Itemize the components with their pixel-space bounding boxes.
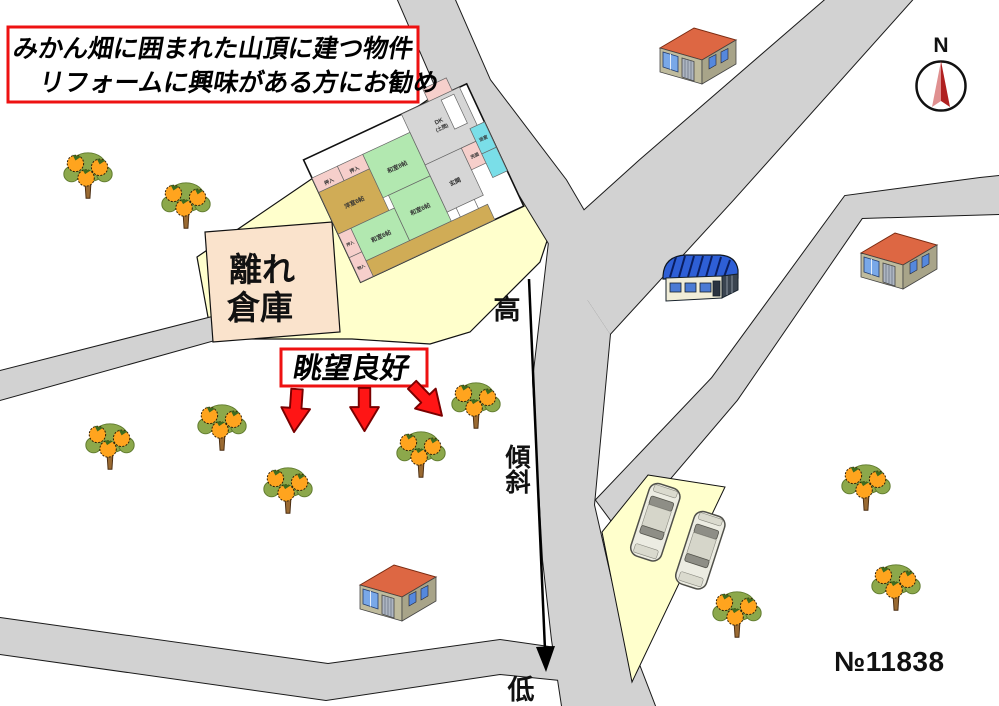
view-arrow (280, 388, 312, 433)
mikan-tree (452, 383, 500, 428)
annex-building: 離れ 倉庫 (205, 222, 340, 342)
mikan-tree (162, 183, 210, 228)
headline-box: みかん畑に囲まれた山頂に建つ物件 リフォームに興味がある方にお勧め (8, 27, 441, 102)
road-network (0, 0, 999, 706)
house-icon (660, 28, 736, 84)
slope-low-label: 低 (507, 675, 535, 705)
mikan-tree (713, 592, 761, 637)
mikan-tree (64, 153, 112, 198)
mikan-tree (842, 465, 890, 510)
annex-label-line2: 倉庫 (226, 289, 293, 326)
view-note: 眺望良好 (280, 349, 453, 433)
site-map: 離れ 倉庫 押入 押入 洋室6帖 和室8帖 (0, 0, 999, 706)
compass-north-label: N (933, 34, 948, 57)
slope-mid-label: 傾斜 (502, 444, 532, 495)
house-icon (861, 233, 937, 289)
slope-high-label: 高 (494, 294, 521, 325)
mikan-tree (198, 405, 246, 450)
house-icon (360, 565, 436, 621)
annex-label-line1: 離れ (229, 251, 295, 288)
warehouse-icon (663, 255, 738, 301)
view-note-label: 眺望良好 (291, 351, 413, 385)
compass: N (917, 34, 966, 111)
mikan-tree (397, 432, 445, 477)
site-map-page: 離れ 倉庫 押入 押入 洋室6帖 和室8帖 (0, 0, 999, 706)
headline-line2: リフォームに興味がある方にお勧め (37, 68, 441, 97)
mikan-tree (872, 565, 920, 610)
mikan-tree (86, 424, 134, 469)
mikan-tree (264, 468, 312, 513)
view-arrow (350, 388, 379, 431)
property-number: №11838 (834, 646, 945, 677)
headline-line1: みかん畑に囲まれた山頂に建つ物件 (11, 35, 416, 63)
